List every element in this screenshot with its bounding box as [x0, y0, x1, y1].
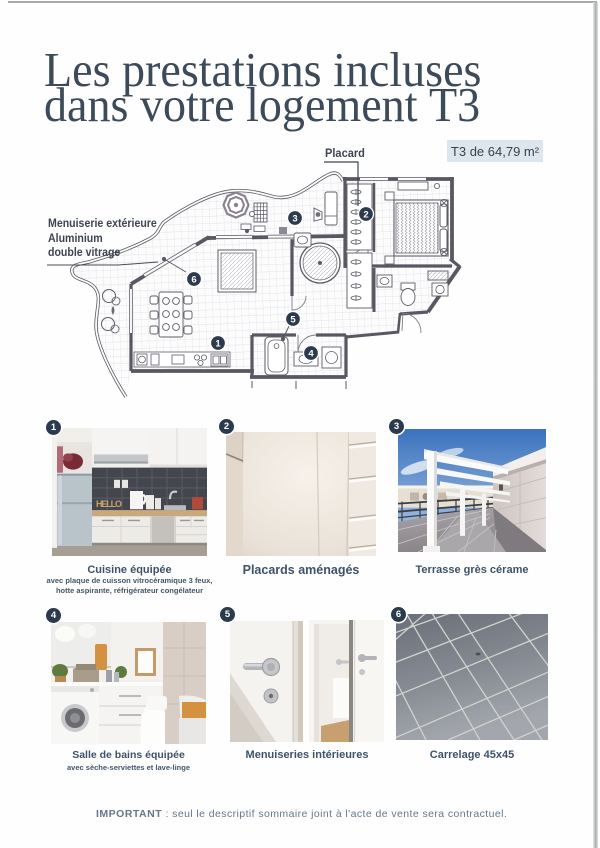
svg-text:5: 5 [290, 315, 296, 326]
svg-text:6: 6 [191, 275, 196, 286]
svg-text:1: 1 [215, 339, 221, 350]
svg-text:2: 2 [363, 210, 368, 221]
svg-text:3: 3 [292, 214, 297, 225]
svg-text:4: 4 [308, 349, 314, 360]
svg-text:HELLO: HELLO [96, 499, 122, 509]
